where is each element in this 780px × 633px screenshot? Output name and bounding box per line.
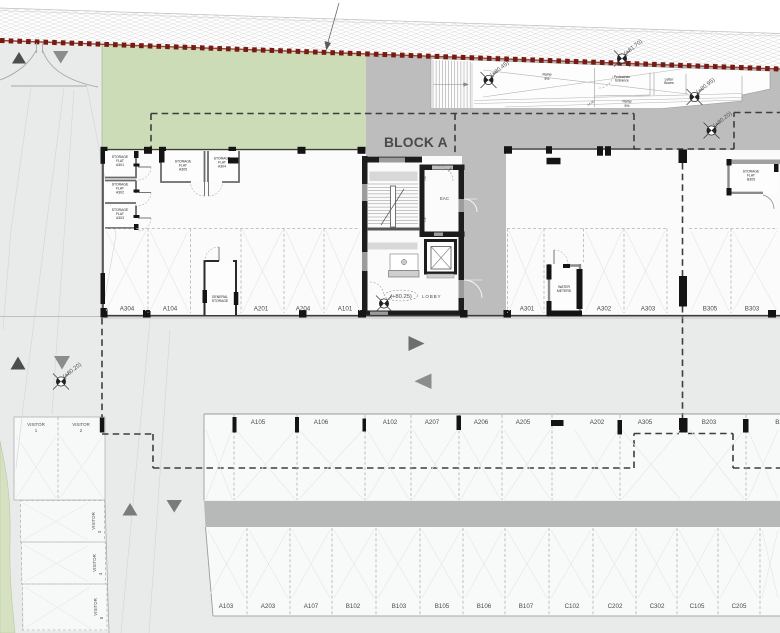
svg-text:STORAGE: STORAGE bbox=[212, 299, 229, 303]
svg-text:A303: A303 bbox=[116, 216, 124, 220]
svg-text:VISITOR: VISITOR bbox=[91, 512, 96, 530]
svg-text:A302: A302 bbox=[116, 191, 124, 195]
svg-text:A301: A301 bbox=[520, 306, 535, 313]
svg-text:A303: A303 bbox=[641, 306, 656, 313]
svg-text:A201: A201 bbox=[254, 306, 269, 313]
svg-text:A206: A206 bbox=[474, 419, 489, 426]
svg-text:B203: B203 bbox=[702, 419, 717, 426]
svg-text:A305: A305 bbox=[638, 419, 653, 426]
svg-text:VISITOR: VISITOR bbox=[92, 554, 97, 572]
svg-text:A305: A305 bbox=[179, 168, 187, 172]
svg-text:A105: A105 bbox=[251, 419, 266, 426]
svg-text:A304: A304 bbox=[218, 165, 226, 169]
svg-text:A103: A103 bbox=[219, 603, 234, 610]
svg-text:A204: A204 bbox=[296, 306, 311, 313]
svg-text:Boxes: Boxes bbox=[664, 81, 674, 85]
svg-text:B303: B303 bbox=[745, 306, 760, 313]
svg-text:(+80.25): (+80.25) bbox=[390, 294, 412, 300]
svg-text:Entrance: Entrance bbox=[615, 79, 629, 83]
svg-text:VISITOR: VISITOR bbox=[72, 422, 90, 427]
svg-text:B105: B105 bbox=[435, 603, 450, 610]
svg-text:A101: A101 bbox=[338, 306, 353, 313]
svg-text:A106: A106 bbox=[314, 419, 329, 426]
svg-text:BLOCK A: BLOCK A bbox=[384, 135, 448, 150]
svg-text:B2: B2 bbox=[775, 419, 780, 426]
svg-text:METERS: METERS bbox=[557, 289, 572, 293]
svg-text:A205: A205 bbox=[516, 419, 531, 426]
svg-text:5%: 5% bbox=[625, 104, 630, 108]
svg-text:B102: B102 bbox=[346, 603, 361, 610]
svg-text:B305: B305 bbox=[747, 178, 755, 182]
svg-text:A102: A102 bbox=[383, 419, 398, 426]
svg-text:C205: C205 bbox=[732, 603, 747, 610]
svg-text:B107: B107 bbox=[519, 603, 534, 610]
svg-text:A304: A304 bbox=[120, 306, 135, 313]
svg-text:B103: B103 bbox=[392, 603, 407, 610]
svg-text:A203: A203 bbox=[261, 603, 276, 610]
svg-text:A301: A301 bbox=[116, 163, 124, 167]
svg-text:A202: A202 bbox=[590, 419, 605, 426]
svg-text:EAC: EAC bbox=[440, 196, 449, 201]
svg-text:A104: A104 bbox=[163, 306, 178, 313]
svg-text:5%: 5% bbox=[545, 77, 550, 81]
svg-text:3.90: 3.90 bbox=[423, 175, 427, 181]
svg-text:A207: A207 bbox=[425, 419, 440, 426]
svg-text:1.90: 1.90 bbox=[423, 216, 427, 222]
svg-text:B106: B106 bbox=[477, 603, 492, 610]
svg-text:A302: A302 bbox=[597, 306, 612, 313]
svg-text:C105: C105 bbox=[690, 603, 705, 610]
svg-text:VISITOR: VISITOR bbox=[27, 422, 45, 427]
svg-text:VISITOR: VISITOR bbox=[93, 598, 98, 616]
svg-text:C202: C202 bbox=[608, 603, 623, 610]
svg-text:LOBBY: LOBBY bbox=[422, 294, 441, 299]
svg-text:A107: A107 bbox=[304, 603, 319, 610]
svg-text:B305: B305 bbox=[703, 306, 718, 313]
svg-text:C102: C102 bbox=[565, 603, 580, 610]
svg-text:C302: C302 bbox=[650, 603, 665, 610]
